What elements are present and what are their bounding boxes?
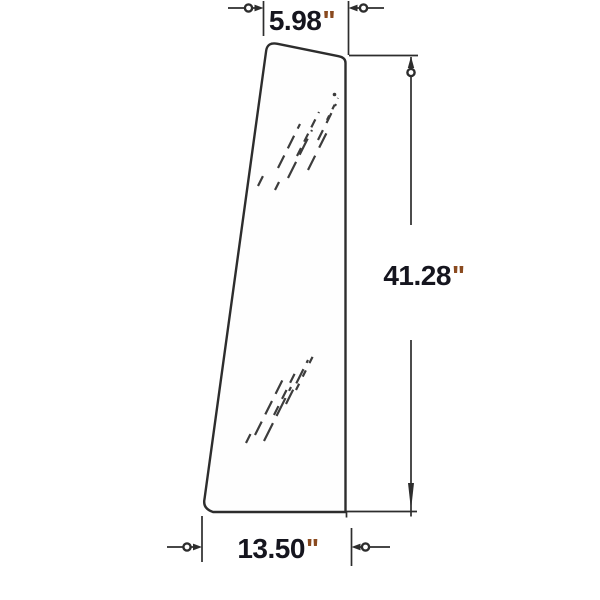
arrowhead-right-icon [193, 544, 202, 551]
arrow-tail-ring [360, 4, 367, 11]
inch-mark: " [452, 260, 465, 291]
dimension-label-right-height: 41.28" [383, 262, 464, 290]
arrowhead-left-icon [352, 544, 361, 551]
arrow-tail-ring [362, 543, 369, 550]
arrowhead-down-icon [408, 483, 414, 510]
inch-mark: " [322, 5, 335, 36]
dimension-value: 41.28 [383, 260, 451, 291]
dimension-label-top-width: 5.98" [269, 7, 335, 35]
arrowhead-left-icon [349, 5, 358, 12]
arrow-tail-ring [407, 69, 414, 76]
dimension-value: 5.98 [269, 5, 322, 36]
hatch-dot [333, 93, 337, 97]
arrow-tail-ring [183, 543, 190, 550]
arrow-tail-ring [245, 4, 252, 11]
inch-mark: " [306, 533, 319, 564]
dimension-value: 13.50 [237, 533, 305, 564]
diagram-canvas: 5.98" 41.28" 13.50" [0, 0, 600, 600]
dimension-label-bottom-width: 13.50" [237, 535, 318, 563]
glass-panel-outline [204, 43, 345, 512]
arrowhead-up-icon [408, 57, 414, 69]
arrowhead-right-icon [255, 5, 264, 12]
technical-drawing-svg [0, 0, 600, 600]
